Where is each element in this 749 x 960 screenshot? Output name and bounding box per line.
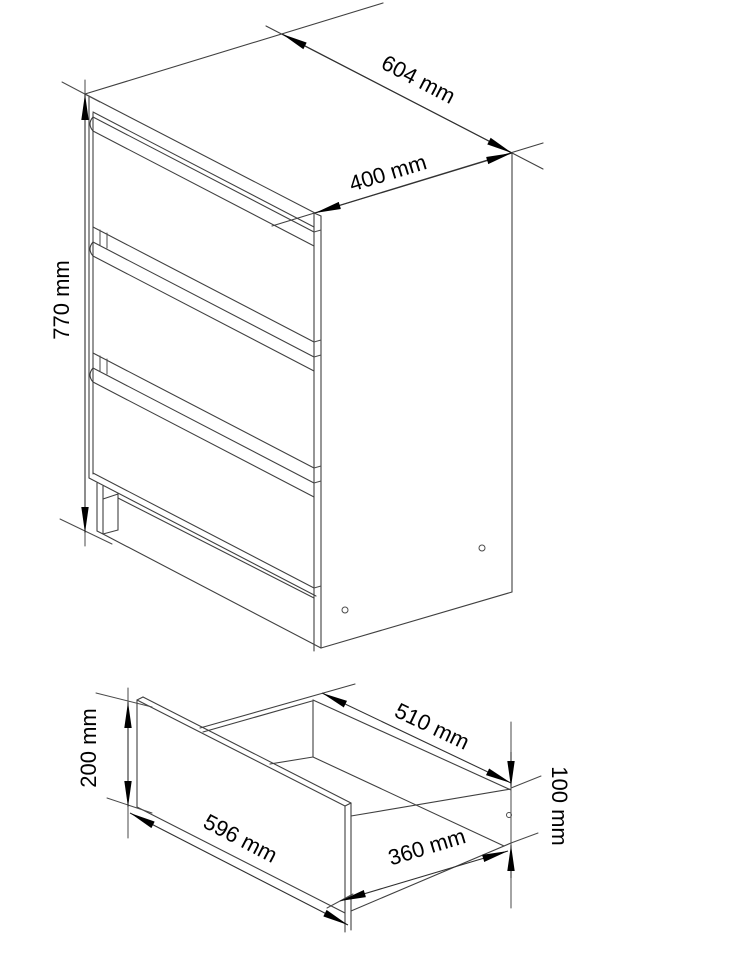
dimension-depth-400: 400 mm <box>315 149 512 213</box>
dimension-label-width: 604 mm <box>377 50 459 109</box>
drawer-figure: 200 mm 596 mm 510 mm 100 mm 360 mm <box>76 684 572 932</box>
dimension-label-side-height: 100 mm <box>547 766 572 845</box>
cabinet-side-panel <box>314 153 512 651</box>
drawer-front-2 <box>90 242 314 468</box>
cabinet-front-face <box>89 97 316 596</box>
dimension-label-inner-depth: 360 mm <box>385 823 468 870</box>
drawer-front-panel <box>137 697 351 932</box>
drawer-interior <box>200 684 511 846</box>
dimension-label-height: 770 mm <box>49 260 74 339</box>
cam-hole-1 <box>342 607 348 613</box>
drawer-front-1 <box>90 117 314 342</box>
technical-drawing: 604 mm 400 mm 770 mm <box>0 0 749 960</box>
cam-hole-2 <box>479 545 485 551</box>
dimension-label-depth: 400 mm <box>346 149 429 196</box>
drawer-front-3 <box>90 368 314 588</box>
cabinet-plinth <box>97 483 321 648</box>
dimension-front-width-596: 596 mm <box>130 809 348 925</box>
diagram-page: 604 mm 400 mm 770 mm <box>0 0 749 960</box>
dimension-width-604: 604 mm <box>282 34 512 153</box>
dimension-label-front-width: 596 mm <box>199 809 281 868</box>
dimension-side-height-100: 100 mm <box>511 722 572 908</box>
cabinet-figure: 604 mm 400 mm 770 mm <box>49 3 543 651</box>
dimension-front-height-200: 200 mm <box>76 688 152 838</box>
dimension-label-side-depth: 510 mm <box>391 698 474 755</box>
front-leg <box>97 483 118 534</box>
dimension-label-front-height: 200 mm <box>76 708 101 787</box>
dimension-side-depth-510: 510 mm <box>322 693 511 783</box>
dimension-height-770: 770 mm <box>49 80 112 546</box>
dimension-inner-depth-360: 360 mm <box>327 823 508 908</box>
cabinet-top-face <box>85 3 543 226</box>
